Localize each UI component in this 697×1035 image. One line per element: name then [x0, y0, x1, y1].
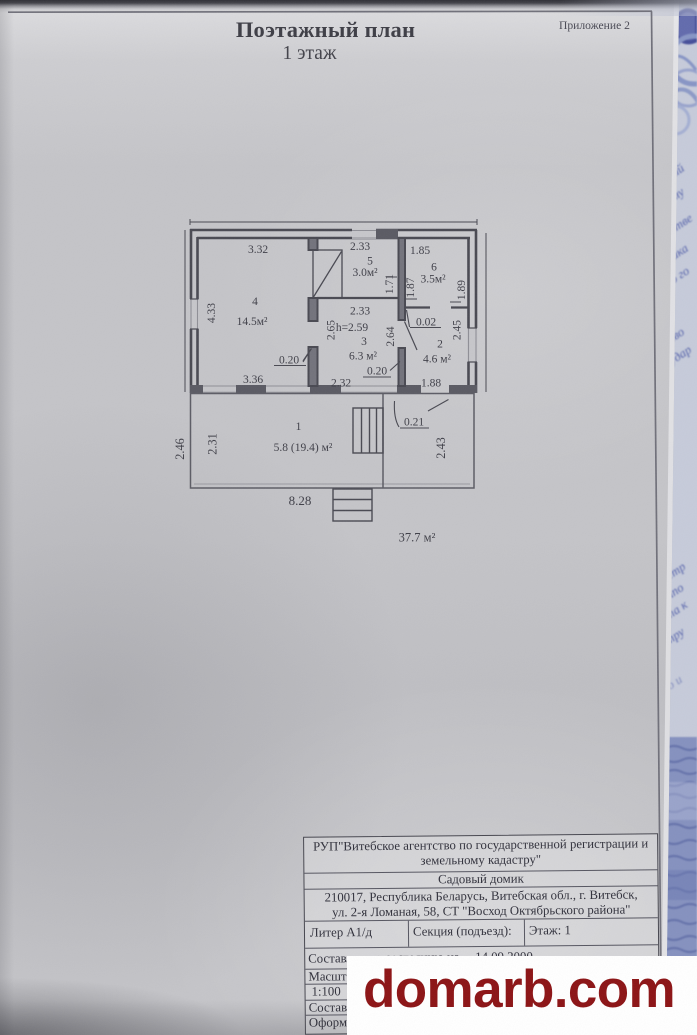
svg-text:2.64: 2.64 [385, 326, 397, 346]
svg-text:2: 2 [437, 339, 443, 351]
svg-text:4.70: 4.70 [171, 303, 185, 324]
svg-text:3.36: 3.36 [243, 374, 263, 386]
svg-text:3.0м²: 3.0м² [352, 267, 378, 279]
svg-text:37.7 м²: 37.7 м² [399, 531, 436, 545]
svg-text:1: 1 [296, 421, 302, 433]
svg-text:2.33: 2.33 [350, 306, 370, 318]
svg-text:0.02: 0.02 [416, 317, 436, 329]
svg-text:2.65: 2.65 [326, 320, 338, 340]
svg-text:3.32: 3.32 [248, 244, 268, 256]
svg-text:h=2.59: h=2.59 [336, 322, 369, 334]
svg-text:2.32: 2.32 [331, 378, 351, 390]
svg-text:0.20: 0.20 [279, 355, 299, 367]
svg-text:4: 4 [252, 296, 258, 308]
svg-text:1.87: 1.87 [405, 277, 417, 297]
svg-text:1.89: 1.89 [456, 280, 468, 300]
svg-text:1.71: 1.71 [384, 274, 396, 294]
svg-text:0.20: 0.20 [367, 366, 387, 378]
svg-text:4.33: 4.33 [206, 303, 218, 323]
svg-text:5.8 (19.4) м²: 5.8 (19.4) м² [274, 442, 333, 454]
svg-text:4.67: 4.67 [482, 303, 496, 324]
svg-text:3: 3 [361, 336, 367, 348]
svg-text:4.6 м²: 4.6 м² [423, 354, 452, 366]
svg-text:3.5м²: 3.5м² [420, 274, 446, 286]
svg-text:5: 5 [367, 256, 373, 268]
svg-text:2.45: 2.45 [452, 320, 464, 340]
svg-text:1.85: 1.85 [410, 245, 430, 257]
svg-text:14.5м²: 14.5м² [237, 316, 268, 328]
svg-text:8.28: 8.28 [289, 493, 312, 508]
svg-text:2.31: 2.31 [206, 433, 220, 455]
svg-text:2.33: 2.33 [350, 241, 370, 253]
svg-text:2.46: 2.46 [173, 438, 187, 460]
svg-text:8.27: 8.27 [332, 207, 353, 221]
svg-text:0.21: 0.21 [404, 417, 424, 429]
svg-text:6.3 м²: 6.3 м² [349, 351, 378, 363]
svg-text:1.88: 1.88 [421, 378, 441, 390]
svg-text:6: 6 [431, 262, 437, 274]
svg-text:2.43: 2.43 [434, 437, 448, 459]
